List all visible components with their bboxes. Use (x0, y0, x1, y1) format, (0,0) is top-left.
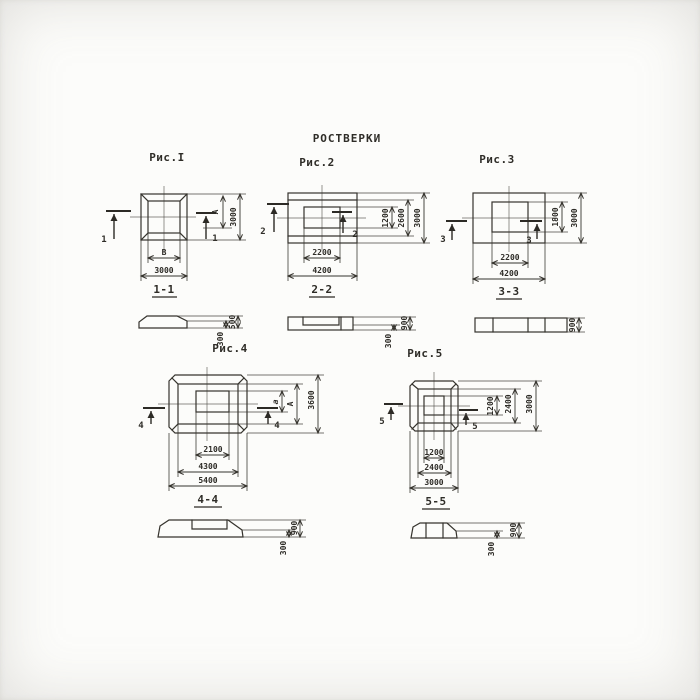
dim-text: 300 (384, 334, 393, 349)
dim-text: 5400 (198, 476, 217, 485)
dim-text: 2200 (312, 248, 331, 257)
notch (303, 317, 339, 325)
inner-outline (492, 202, 528, 232)
cut-number: 1 (101, 235, 106, 245)
section-label: 4-4 (197, 493, 218, 506)
dim-text: 1200 (381, 208, 390, 227)
dim-text: 3000 (229, 207, 238, 226)
dim-text: 1200 (424, 448, 443, 457)
cut-number: 5 (472, 422, 477, 432)
miter (412, 384, 418, 389)
section-outline (475, 318, 567, 332)
dim-text: 3000 (570, 208, 579, 227)
miter (451, 423, 456, 429)
dim-text: 2100 (203, 445, 222, 454)
dim-text: 1200 (486, 396, 495, 415)
miter (141, 233, 148, 240)
dim-text: A (286, 401, 295, 406)
dim-text: 300 (279, 541, 288, 556)
figure-4-plan: Рис.4 4 4 a A 3600 2100 4300 (138, 342, 324, 507)
dim-text: 900 (509, 523, 518, 538)
cut-number: 2 (352, 230, 357, 240)
miter (238, 378, 244, 384)
cut-number: 5 (379, 417, 384, 427)
dim-text: 4200 (499, 269, 518, 278)
section-outline (139, 316, 187, 328)
dim-text: 900 (290, 521, 299, 536)
technical-drawing: РОСТВЕРКИ Рис.I 1 1 A 3000 B 3000 1-1 (0, 0, 700, 700)
cut-number: 3 (440, 235, 445, 245)
figure-2-plan: Рис.2 2 2 1200 2600 3000 2200 4200 2-2 (260, 156, 430, 297)
dim-text: B (162, 248, 167, 257)
miter (180, 194, 187, 201)
dim-text: 4200 (312, 266, 331, 275)
drawing-sheet: РОСТВЕРКИ Рис.I 1 1 A 3000 B 3000 1-1 (0, 0, 700, 700)
figure-5-plan: Рис.5 5 5 1200 2400 3000 1200 24 (379, 347, 542, 509)
section-label: 1-1 (153, 283, 174, 296)
sheet-title: РОСТВЕРКИ (313, 132, 382, 145)
innermost-outline (196, 391, 229, 412)
dim-text: a (271, 399, 280, 404)
figure-3-caption: Рис.3 (479, 153, 515, 166)
dim-text: 4300 (198, 462, 217, 471)
dim-text: 300 (487, 542, 496, 557)
miter (451, 384, 456, 389)
dim-text: 2600 (397, 208, 406, 227)
cut-number: 4 (274, 421, 280, 431)
section-2-2: 300 900 (288, 316, 416, 349)
section-label: 5-5 (425, 495, 446, 508)
cut-number: 3 (526, 236, 531, 246)
dim-text: 2200 (500, 253, 519, 262)
dim-text: A (211, 209, 220, 214)
figure-5-caption: Рис.5 (407, 347, 443, 360)
dim-text: 900 (568, 318, 577, 333)
dim-text: 900 (400, 316, 409, 331)
miter (412, 423, 418, 429)
figure-4-caption: Рис.4 (212, 342, 248, 355)
section-5-5: 300 900 (411, 523, 525, 557)
miter (180, 233, 187, 240)
cut-number: 4 (138, 421, 144, 431)
section-outline (288, 317, 353, 330)
dim-text: 3000 (424, 478, 443, 487)
figure-2-caption: Рис.2 (299, 156, 335, 169)
miter (172, 424, 178, 430)
dim-text: 1800 (551, 207, 560, 226)
figure-3-plan: Рис.3 3 3 1800 3000 2200 4200 3-3 (440, 153, 587, 299)
dim-text: 3000 (154, 266, 173, 275)
section-outline (411, 523, 457, 538)
section-4-4: 300 900 (158, 520, 306, 555)
dim-text: 2400 (504, 394, 513, 413)
section-label: 2-2 (311, 283, 332, 296)
dim-text: 500 (228, 315, 237, 330)
miter (172, 378, 178, 384)
section-label: 3-3 (498, 285, 519, 298)
figure-1-caption: Рис.I (149, 151, 185, 164)
dim-text: 3000 (525, 394, 534, 413)
section-3-3: 900 (475, 318, 585, 333)
dim-text: 3600 (307, 390, 316, 409)
dim-text: 2400 (424, 463, 443, 472)
miter (141, 194, 148, 201)
figure-1-plan: Рис.I 1 1 A 3000 B 3000 1-1 (101, 151, 246, 297)
miter (238, 424, 244, 430)
dim-text: 3000 (413, 208, 422, 227)
cut-number: 1 (212, 234, 217, 244)
cut-number: 2 (260, 227, 265, 237)
notch (192, 520, 227, 529)
